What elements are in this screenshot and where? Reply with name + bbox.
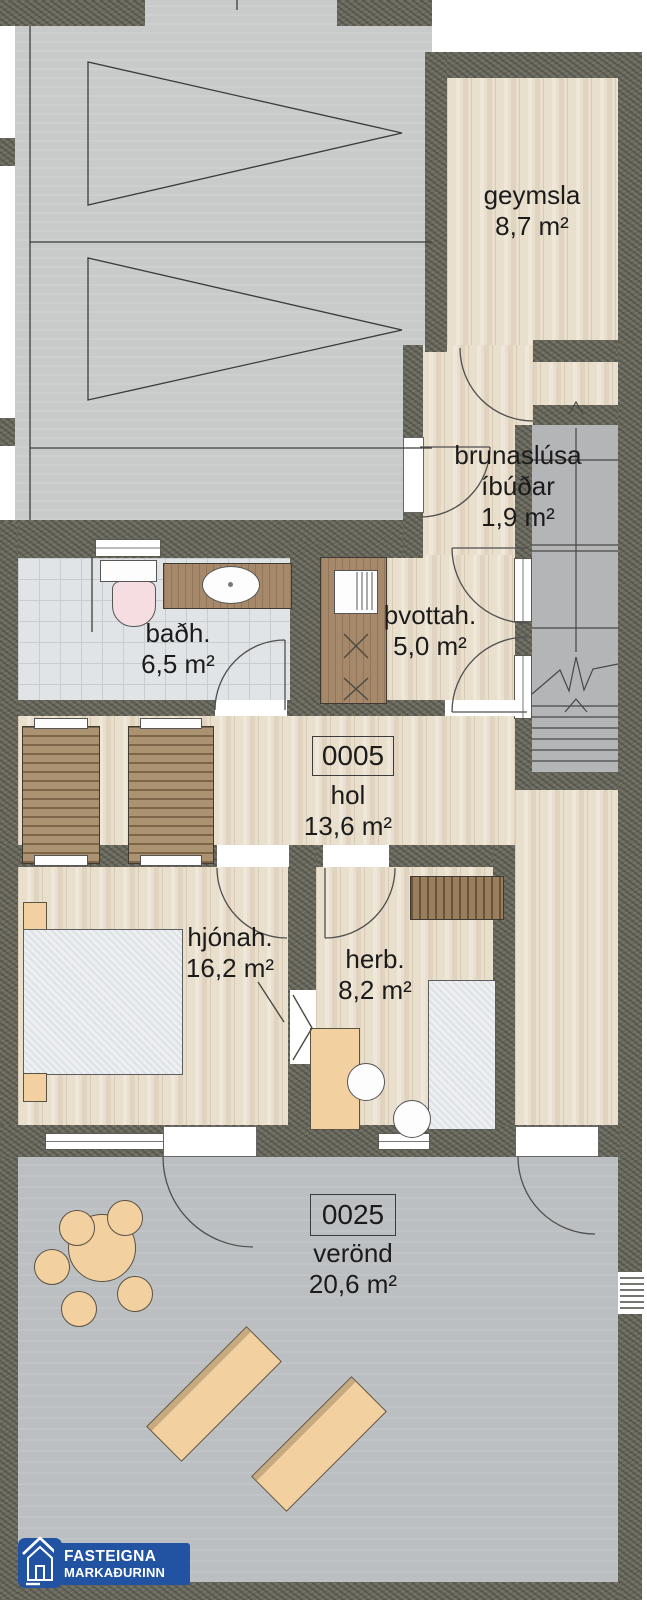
wall: [530, 772, 620, 790]
wall: [0, 418, 15, 446]
faucet-dot: [228, 582, 233, 587]
outer-wall-right: [618, 52, 642, 1600]
unit-number-box: 0025: [310, 1194, 396, 1236]
terrace-chair: [117, 1276, 153, 1312]
wall: [533, 405, 618, 425]
chair-icon: [393, 1100, 431, 1138]
room-area: 5,0 m²: [330, 631, 530, 662]
brunaslusa-label: brunaslúsa íbúðar 1,9 m²: [418, 440, 618, 533]
room-area: 8,7 m²: [442, 211, 622, 242]
fasteigna-logo: FASTEIGNA MARKAÐURINN: [16, 1524, 196, 1594]
wall: [337, 0, 432, 26]
room-area: 20,6 m²: [258, 1269, 448, 1300]
room-name: þvottah.: [330, 600, 530, 631]
logo-text-line2: MARKAÐURINN: [64, 1565, 190, 1580]
closet: [410, 876, 504, 920]
logo-text-line1: FASTEIGNA: [64, 1548, 190, 1565]
corridor-terrace-door-opening: [515, 1126, 599, 1157]
bathroom-window: [95, 539, 161, 557]
hjonaherbergi-window: [45, 1133, 165, 1150]
nightstand: [23, 902, 47, 931]
wardrobe-door-track: [140, 718, 202, 729]
terrace-chair: [61, 1291, 97, 1327]
outer-wall-left: [0, 522, 18, 1600]
wall: [425, 52, 642, 78]
hall-wardrobe: [128, 726, 214, 864]
hall-door-opening: [445, 700, 517, 716]
wall: [0, 138, 15, 166]
hjonaherbergi-door-opening: [217, 845, 289, 867]
room-area: 13,6 m²: [258, 811, 438, 842]
terrace-chair: [107, 1200, 143, 1236]
unit-number: 0025: [322, 1199, 384, 1231]
chair-icon: [347, 1063, 385, 1101]
wall: [0, 520, 403, 558]
terrace-chair: [34, 1249, 70, 1285]
herbergi-label: herb. 8,2 m²: [280, 944, 470, 1006]
terrace-door-opening: [163, 1126, 257, 1157]
wall: [0, 0, 145, 26]
room-name: hol: [258, 780, 438, 811]
wardrobe-door-track: [34, 718, 88, 729]
hol-label: hol 13,6 m²: [258, 780, 438, 842]
wall: [403, 345, 423, 437]
thvottahus-label: þvottah. 5,0 m²: [330, 600, 530, 662]
room-name: baðh.: [78, 618, 278, 649]
hall-corridor-floor: [515, 790, 618, 1125]
hall-wardrobe: [22, 726, 100, 864]
terrace-chair: [59, 1210, 95, 1246]
room-name: geymsla: [442, 180, 622, 211]
nightstand: [23, 1073, 47, 1102]
unit-number: 0005: [322, 740, 384, 772]
floor-plan: geymsla 8,7 m² brunaslúsa íbúðar 1,9 m² …: [0, 0, 647, 1600]
badherbergi-label: baðh. 6,5 m²: [78, 618, 278, 680]
room-area: 1,9 m²: [418, 502, 618, 533]
wall: [290, 540, 320, 702]
wardrobe-door-track: [140, 855, 202, 866]
bathroom-door-opening: [215, 700, 287, 716]
unit-number-box: 0005: [312, 736, 394, 776]
room-area: 6,5 m²: [78, 649, 278, 680]
terrace-side-opening: [618, 1272, 644, 1314]
room-name: verönd: [258, 1238, 448, 1269]
room-name: íbúðar: [418, 471, 618, 502]
geymsla-label: geymsla 8,7 m²: [442, 180, 622, 242]
logo-banner: FASTEIGNA MARKAÐURINN: [54, 1543, 190, 1585]
room-area: 8,2 m²: [280, 975, 470, 1006]
wardrobe-door-track: [34, 855, 88, 866]
wall: [533, 340, 618, 362]
garage-ramp-area: [15, 0, 432, 520]
room-name: herb.: [280, 944, 470, 975]
herbergi-door-opening: [323, 845, 389, 867]
toilet-cistern: [100, 560, 157, 582]
verond-label: verönd 20,6 m²: [258, 1238, 448, 1300]
room-name: brunaslúsa: [418, 440, 618, 471]
